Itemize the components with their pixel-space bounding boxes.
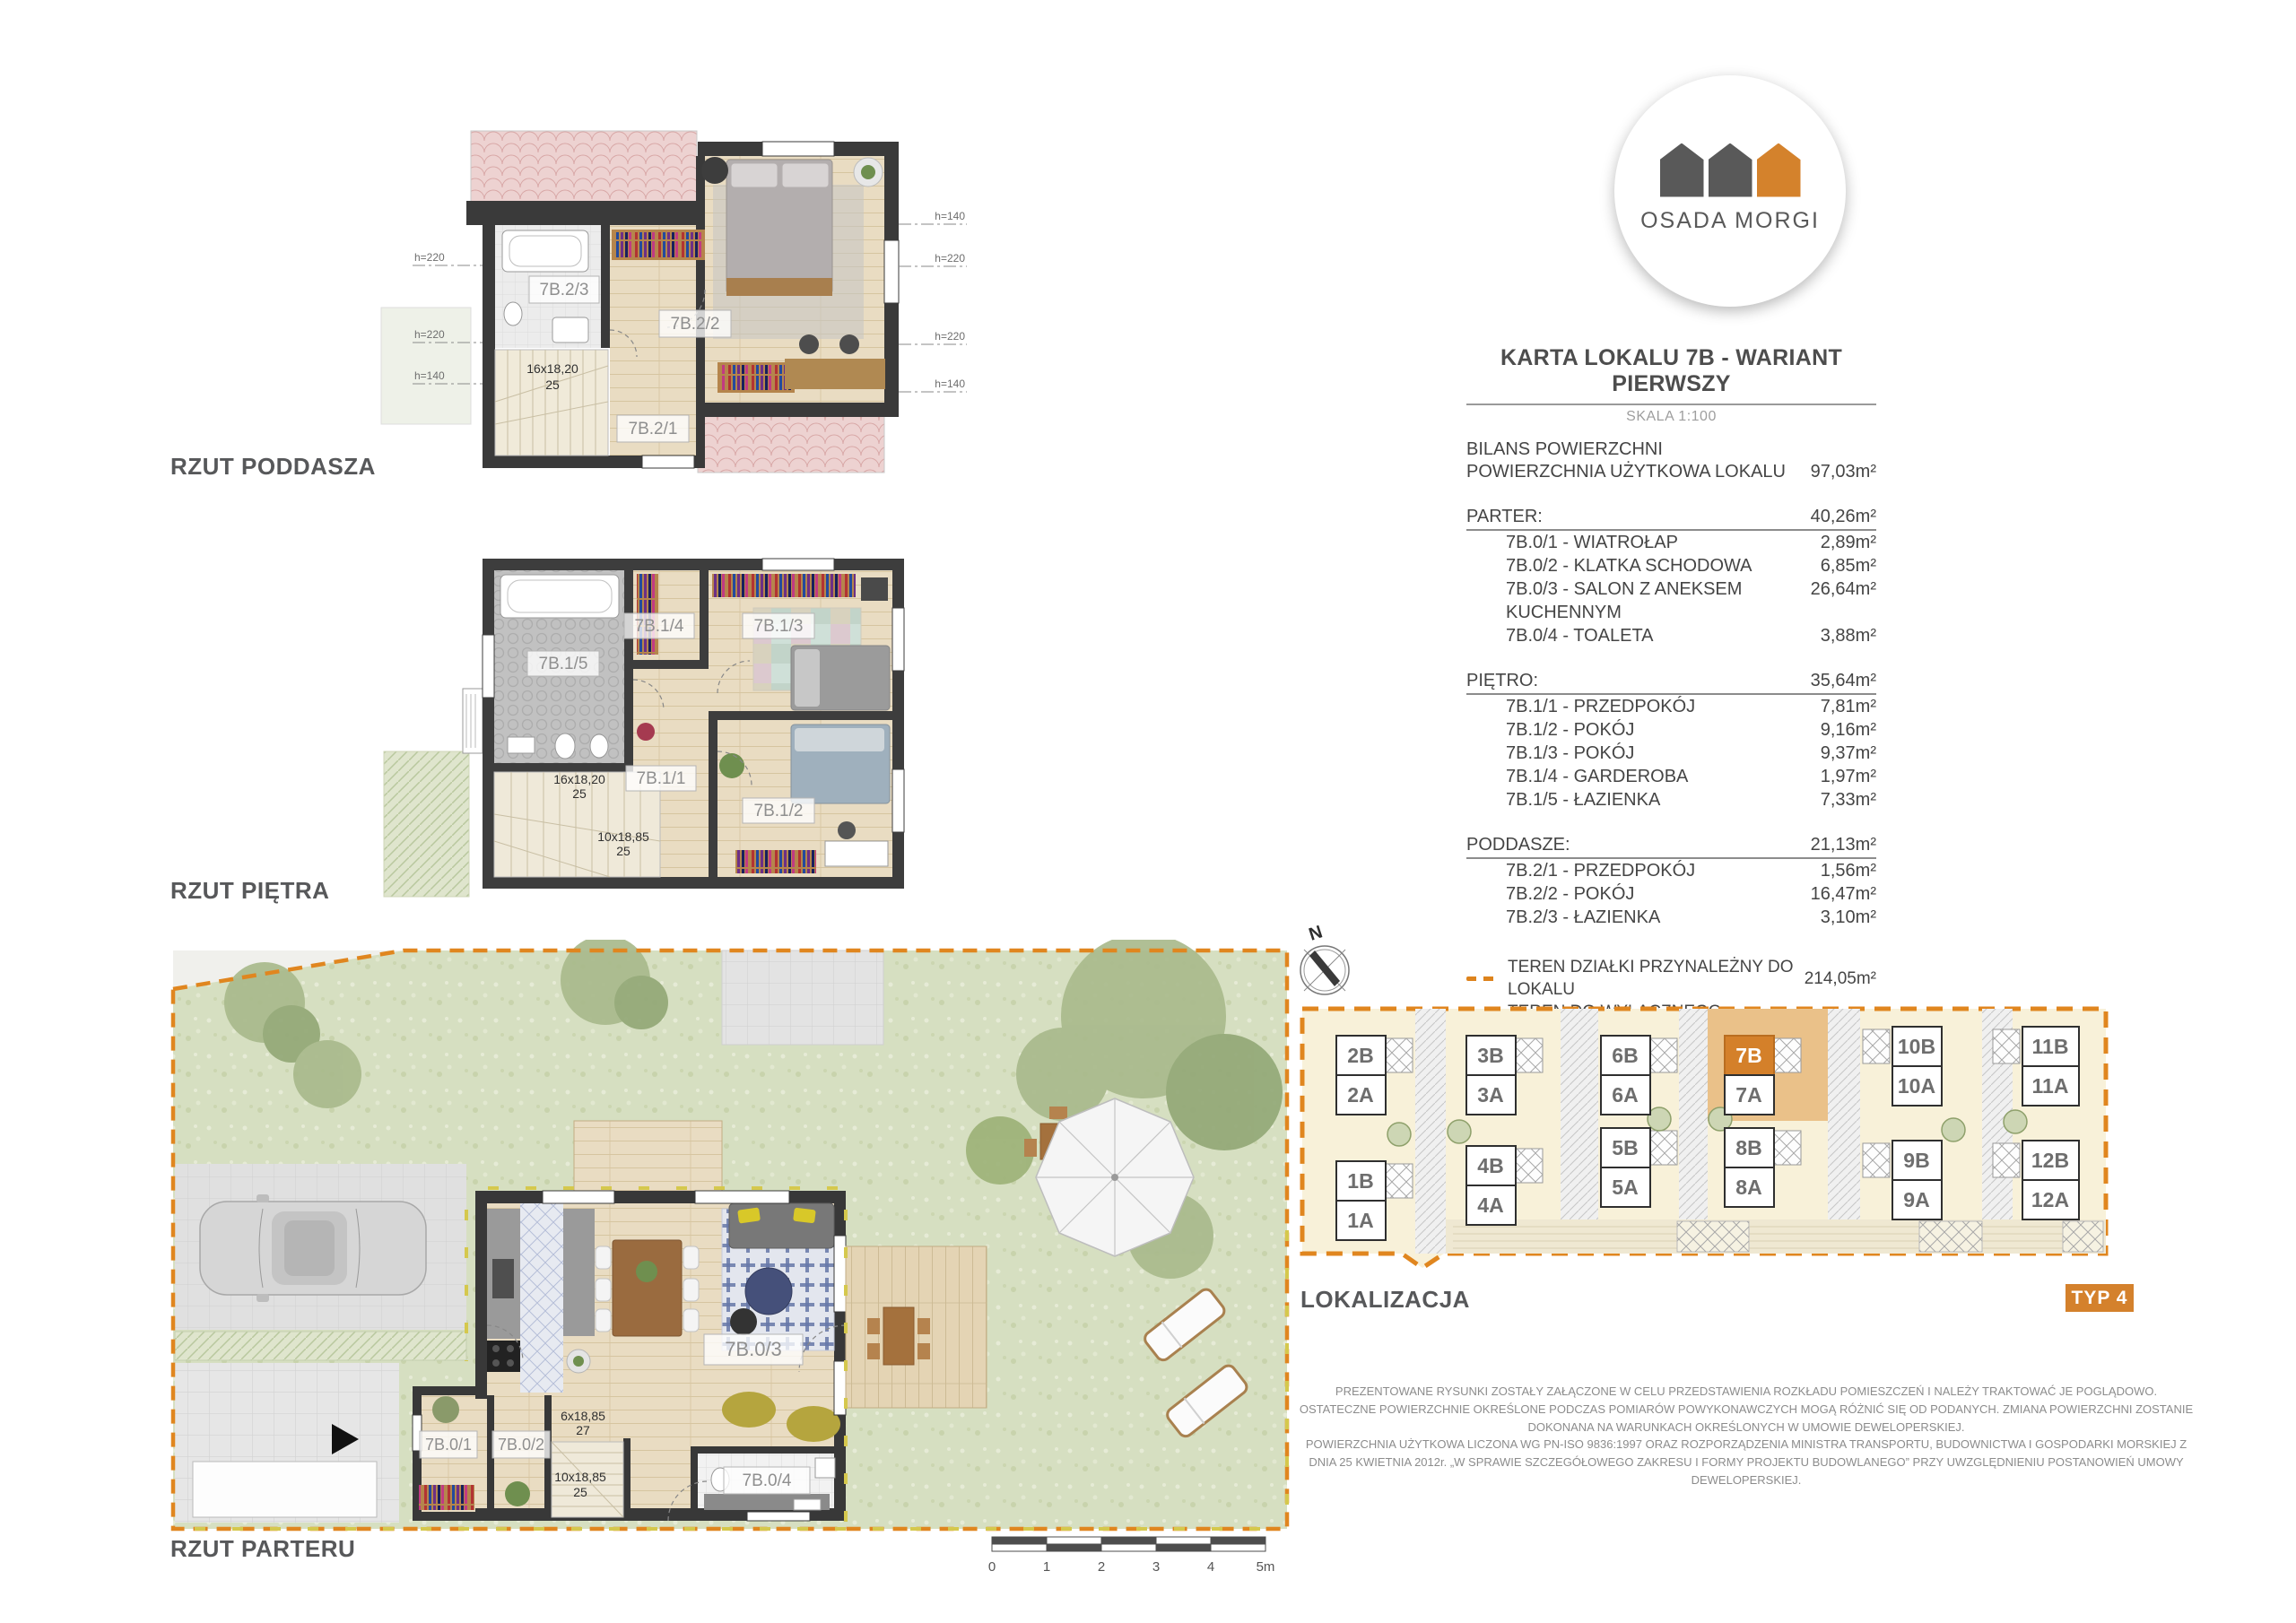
section-label: PARTER:	[1466, 505, 1543, 528]
floor-plan-attic: 7B.2/3 7B.2/2 7B.2/1 16x18,20 25 h=220	[377, 106, 987, 491]
unit-10a: 10A	[1892, 1066, 1942, 1106]
unit-3a: 3A	[1466, 1075, 1516, 1115]
svg-text:8A: 8A	[1735, 1176, 1761, 1199]
attic-plan-title: RZUT PODDASZA	[170, 453, 376, 481]
stair-count: 25	[545, 378, 560, 392]
room-label: 7B.2/2	[659, 310, 731, 337]
unit-8b: 8B	[1725, 1128, 1774, 1167]
usable-area-row: POWIERZCHNIA UŻYTKOWA LOKALU 97,03m²	[1466, 460, 1876, 483]
section-label: PIĘTRO:	[1466, 669, 1538, 692]
svg-text:1A: 1A	[1347, 1209, 1373, 1232]
stair-dimension: 10x18,85	[554, 1470, 606, 1484]
unit-7a: 7A	[1725, 1075, 1774, 1115]
unit-4a: 4A	[1466, 1185, 1516, 1225]
section-poddasze: PODDASZE: 21,13m² 7B.2/1 - PRZEDPOKÓJ1,5…	[1466, 833, 1876, 929]
room-label: 7B.0/3	[704, 1334, 803, 1365]
stair-dimension: 6x18,85	[561, 1409, 605, 1423]
svg-text:11A: 11A	[2032, 1074, 2069, 1098]
disclaimer-paragraph-1: PREZENTOWANE RYSUNKI ZOSTAŁY ZAŁĄCZONE W…	[1298, 1383, 2195, 1436]
unit-8a: 8A	[1725, 1167, 1774, 1207]
svg-text:7B.1/4: 7B.1/4	[635, 617, 684, 636]
svg-text:1B: 1B	[1347, 1169, 1373, 1193]
svg-text:7B.1/2: 7B.1/2	[754, 802, 804, 820]
room-row: 7B.1/1 - PRZEDPOKÓJ7,81m²	[1466, 695, 1876, 718]
unit-10b: 10B	[1892, 1027, 1942, 1066]
svg-text:3: 3	[1152, 1559, 1160, 1575]
svg-text:7B.2/3: 7B.2/3	[540, 281, 589, 299]
house-icon-accent	[1757, 143, 1801, 197]
unit-2b: 2B	[1336, 1036, 1386, 1075]
section-parter: PARTER: 40,26m² 7B.0/1 - WIATROŁAP2,89m²…	[1466, 505, 1876, 647]
room-label: 7B.1/2	[743, 798, 814, 823]
section-header: PARTER: 40,26m²	[1466, 505, 1876, 531]
unit-5b: 5B	[1601, 1128, 1650, 1167]
svg-text:2A: 2A	[1347, 1083, 1373, 1107]
room-row: 7B.2/1 - PRZEDPOKÓJ1,56m²	[1466, 859, 1876, 882]
svg-text:9A: 9A	[1903, 1188, 1929, 1211]
unit-5a: 5A	[1601, 1167, 1650, 1207]
svg-text:7B.0/2: 7B.0/2	[498, 1436, 544, 1454]
svg-text:7B.0/3: 7B.0/3	[725, 1338, 782, 1360]
svg-text:10A: 10A	[1898, 1074, 1935, 1098]
type-badge: TYP 4	[2066, 1284, 2134, 1312]
unit-11a: 11A	[2022, 1066, 2079, 1106]
height-label: h=220	[935, 252, 965, 265]
svg-text:4: 4	[1207, 1559, 1214, 1575]
room-label: 7B.0/2	[492, 1431, 550, 1458]
unit-11b: 11B	[2022, 1027, 2079, 1066]
title-divider	[1466, 404, 1876, 405]
svg-text:5A: 5A	[1612, 1176, 1638, 1199]
room-row: 7B.2/2 - POKÓJ16,47m²	[1466, 882, 1876, 906]
unit-9a: 9A	[1892, 1180, 1942, 1219]
card-title: KARTA LOKALU 7B - WARIANT PIERWSZY	[1466, 345, 1876, 397]
attic-terrace	[381, 308, 471, 424]
svg-text:8B: 8B	[1735, 1136, 1761, 1159]
svg-text:9B: 9B	[1903, 1149, 1929, 1172]
room-row: 7B.0/3 - SALON Z ANEKSEM KUCHENNYM26,64m…	[1466, 577, 1876, 624]
room-row: 7B.1/4 - GARDEROBA1,97m²	[1466, 765, 1876, 788]
unit-4b: 4B	[1466, 1146, 1516, 1185]
room-row: 7B.1/5 - ŁAZIENKA7,33m²	[1466, 788, 1876, 811]
stair-dimension: 16x18,20	[553, 772, 605, 786]
room-label: 7B.1/3	[743, 613, 814, 638]
svg-text:7B.2/1: 7B.2/1	[629, 420, 678, 438]
room-label: 7B.1/5	[527, 651, 599, 676]
ground-plan-title: RZUT PARTERU	[170, 1535, 355, 1563]
dining-set	[596, 1240, 699, 1336]
svg-text:0: 0	[988, 1559, 996, 1575]
unit-7b-highlighted: 7B	[1725, 1036, 1774, 1075]
svg-text:7B.1/1: 7B.1/1	[637, 769, 686, 788]
svg-text:6A: 6A	[1612, 1083, 1638, 1107]
unit-2a: 2A	[1336, 1075, 1386, 1115]
height-label: h=220	[414, 251, 445, 264]
first-plan-title: RZUT PIĘTRA	[170, 877, 329, 905]
unit-1b: 1B	[1336, 1161, 1386, 1201]
bilans-label: BILANS POWIERZCHNI	[1466, 439, 1876, 460]
brand-logo: OSADA MORGI	[1614, 75, 1846, 307]
room-row: 7B.0/4 - TOALETA3,88m²	[1466, 624, 1876, 647]
svg-text:7B.0/4: 7B.0/4	[743, 1471, 792, 1490]
unit-12b: 12B	[2022, 1141, 2079, 1180]
scale-bar: 0 1 2 3 4 5m	[981, 1535, 1286, 1580]
usable-area-label: POWIERZCHNIA UŻYTKOWA LOKALU	[1466, 460, 1786, 483]
room-label: 7B.2/1	[617, 415, 689, 442]
section-total: 40,26m²	[1811, 505, 1876, 528]
room-row: 7B.0/1 - WIATROŁAP2,89m²	[1466, 531, 1876, 554]
section-total: 35,64m²	[1811, 669, 1876, 692]
room-row: 7B.0/2 - KLATKA SCHODOWA6,85m²	[1466, 554, 1876, 577]
section-label: PODDASZE:	[1466, 833, 1570, 856]
svg-text:7B.1/5: 7B.1/5	[539, 655, 588, 673]
stair-count: 25	[616, 844, 631, 858]
svg-text:4B: 4B	[1477, 1154, 1503, 1177]
stair-dimension: 16x18,20	[526, 361, 578, 376]
house-icon	[1660, 143, 1704, 197]
unit-9b: 9B	[1892, 1141, 1942, 1180]
svg-text:2: 2	[1098, 1559, 1105, 1575]
svg-text:12B: 12B	[2031, 1149, 2069, 1172]
section-total: 21,13m²	[1811, 833, 1876, 856]
usable-area-value: 97,03m²	[1811, 460, 1876, 483]
svg-text:2B: 2B	[1347, 1044, 1373, 1067]
stair-count: 25	[572, 786, 587, 801]
height-label: h=220	[935, 330, 965, 343]
height-label: h=140	[935, 210, 965, 222]
unit-6b: 6B	[1601, 1036, 1650, 1075]
section-header: PODDASZE: 21,13m²	[1466, 833, 1876, 859]
svg-text:12A: 12A	[2031, 1188, 2069, 1211]
logo-houses-icon	[1660, 143, 1801, 197]
room-label: 7B.0/1	[420, 1431, 477, 1458]
room-label: 7B.2/3	[529, 276, 599, 303]
floor-plan-first: 7B.1/5 7B.1/4 7B.1/3 7B.1/1 7B.1/2 16x18…	[377, 545, 915, 922]
lower-courtyard	[175, 1363, 399, 1523]
svg-text:7B.2/2: 7B.2/2	[671, 315, 720, 334]
svg-text:10B: 10B	[1898, 1035, 1935, 1058]
unit-1a: 1A	[1336, 1201, 1386, 1240]
section-pietro: PIĘTRO: 35,64m² 7B.1/1 - PRZEDPOKÓJ7,81m…	[1466, 669, 1876, 811]
scale-note: SKALA 1:100	[1466, 409, 1876, 425]
svg-text:7A: 7A	[1735, 1083, 1761, 1107]
house-icon	[1709, 143, 1752, 197]
svg-text:7B: 7B	[1735, 1044, 1761, 1067]
compass: N	[1300, 924, 1349, 994]
svg-text:3A: 3A	[1477, 1083, 1503, 1107]
umbrella	[1036, 1098, 1194, 1256]
room-row: 7B.1/3 - POKÓJ9,37m²	[1466, 742, 1876, 765]
room-row: 7B.1/2 - POKÓJ9,16m²	[1466, 718, 1876, 742]
section-header: PIĘTRO: 35,64m²	[1466, 669, 1876, 695]
brand-name: OSADA MORGI	[1640, 208, 1820, 234]
height-label: h=140	[414, 369, 445, 382]
svg-text:7B.0/1: 7B.0/1	[425, 1436, 472, 1454]
svg-text:11B: 11B	[2032, 1035, 2069, 1058]
location-site-plan: N	[1291, 924, 2170, 1282]
disclaimer-paragraph-2: POWIERZCHNIA UŻYTKOWA LICZONA WG PN-ISO …	[1298, 1436, 2195, 1488]
location-title: LOKALIZACJA	[1300, 1286, 1470, 1314]
room-label: 7B.0/4	[724, 1467, 810, 1494]
height-label: h=140	[935, 378, 965, 390]
scale-bar-labels: 0 1 2 3 4 5m	[988, 1559, 1275, 1575]
svg-text:5B: 5B	[1612, 1136, 1638, 1159]
unit-3b: 3B	[1466, 1036, 1516, 1075]
svg-text:6B: 6B	[1612, 1044, 1638, 1067]
car	[200, 1194, 426, 1302]
svg-text:3B: 3B	[1477, 1044, 1503, 1067]
svg-text:7B.1/3: 7B.1/3	[754, 617, 804, 636]
unit-6a: 6A	[1601, 1075, 1650, 1115]
stair-count: 27	[576, 1423, 590, 1437]
lokal-card-page: 7B.2/3 7B.2/2 7B.2/1 16x18,20 25 h=220	[0, 0, 2296, 1623]
room-label: 7B.1/1	[626, 766, 696, 791]
stair-count: 25	[573, 1485, 587, 1499]
scale-bar-segments	[992, 1537, 1265, 1551]
height-label: h=220	[414, 328, 445, 341]
rear-terrace	[846, 1246, 987, 1408]
svg-text:5m: 5m	[1257, 1559, 1275, 1575]
compass-north-label: N	[1307, 924, 1326, 945]
first-terrace	[384, 689, 483, 897]
floor-plan-ground-garden: 7B.0/1 7B.0/2 7B.0/3 7B.0/4 6x18,85 27 1…	[166, 940, 1296, 1567]
room-label: 7B.1/4	[624, 613, 694, 638]
svg-text:1: 1	[1043, 1559, 1050, 1575]
legal-disclaimer: PREZENTOWANE RYSUNKI ZOSTAŁY ZAŁĄCZONE W…	[1298, 1383, 2195, 1489]
unit-12a: 12A	[2022, 1180, 2079, 1219]
stair-dimension: 10x18,85	[597, 829, 649, 844]
svg-text:4A: 4A	[1477, 1193, 1503, 1217]
